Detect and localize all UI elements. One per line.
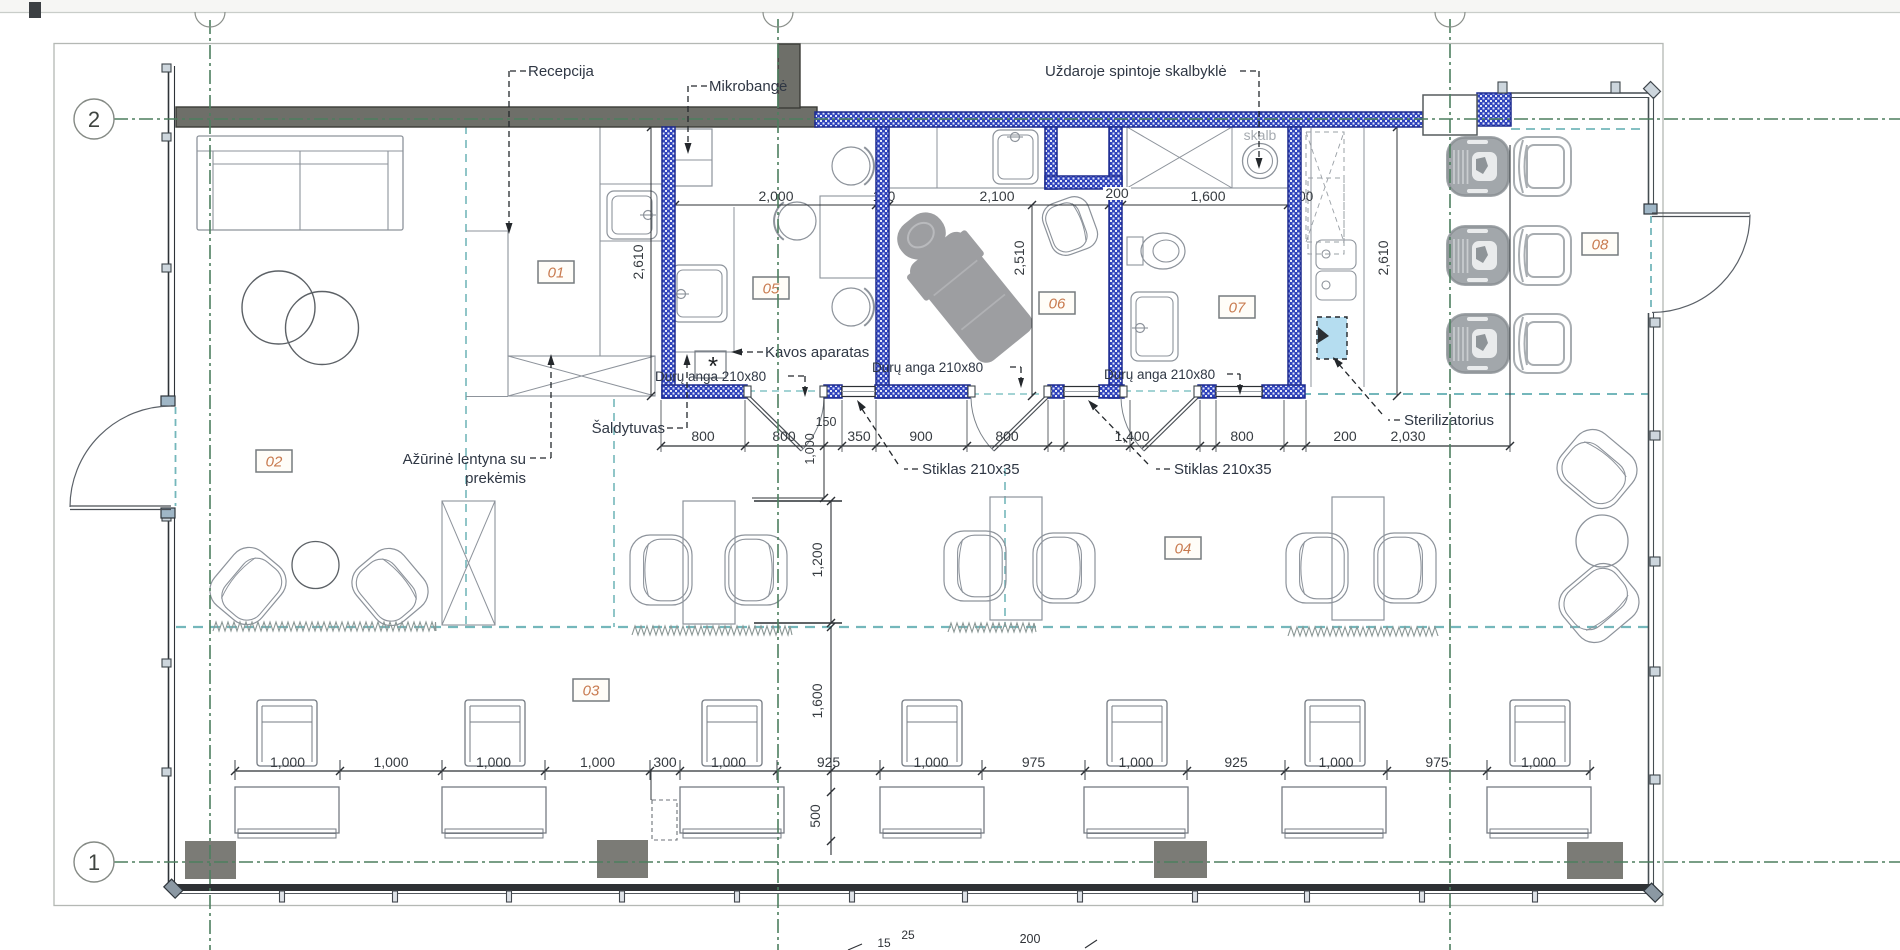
svg-text:200: 200 xyxy=(1020,932,1041,946)
svg-text:975: 975 xyxy=(1022,754,1046,770)
svg-text:04: 04 xyxy=(1175,541,1192,558)
svg-text:925: 925 xyxy=(1224,754,1248,770)
svg-text:2: 2 xyxy=(88,107,100,132)
svg-text:2,510: 2,510 xyxy=(1011,240,1027,275)
svg-text:900: 900 xyxy=(909,428,933,444)
svg-text:1,000: 1,000 xyxy=(711,754,746,770)
svg-text:1,200: 1,200 xyxy=(809,542,825,577)
svg-text:925: 925 xyxy=(817,754,841,770)
svg-text:2,030: 2,030 xyxy=(1390,428,1425,444)
svg-text:Durų anga 210x80: Durų anga 210x80 xyxy=(655,369,766,384)
svg-text:Mikrobangė: Mikrobangė xyxy=(709,78,787,95)
svg-text:500: 500 xyxy=(807,804,823,828)
svg-text:150: 150 xyxy=(816,415,837,429)
svg-text:1,400: 1,400 xyxy=(1114,428,1149,444)
svg-text:Šaldytuvas: Šaldytuvas xyxy=(592,420,665,437)
svg-text:08: 08 xyxy=(1592,237,1609,254)
svg-text:Ažūrinė lentyna su: Ažūrinė lentyna su xyxy=(403,451,526,468)
svg-text:15: 15 xyxy=(877,936,891,950)
svg-text:2,100: 2,100 xyxy=(979,188,1014,204)
svg-text:200: 200 xyxy=(1105,185,1129,201)
svg-text:prekėmis: prekėmis xyxy=(465,470,526,487)
svg-text:1,000: 1,000 xyxy=(803,433,817,464)
svg-text:02: 02 xyxy=(266,454,283,471)
svg-text:800: 800 xyxy=(772,428,796,444)
svg-text:200: 200 xyxy=(1333,428,1357,444)
svg-text:Stiklas 210x35: Stiklas 210x35 xyxy=(922,461,1020,478)
svg-text:Kavos aparatas: Kavos aparatas xyxy=(765,344,869,361)
svg-text:25: 25 xyxy=(901,928,915,942)
svg-text:1,000: 1,000 xyxy=(373,754,408,770)
svg-text:300: 300 xyxy=(653,754,677,770)
svg-text:1,000: 1,000 xyxy=(580,754,615,770)
svg-text:2,610: 2,610 xyxy=(630,244,646,279)
svg-text:Stiklas 210x35: Stiklas 210x35 xyxy=(1174,461,1272,478)
svg-text:2,610: 2,610 xyxy=(1375,240,1391,275)
svg-text:1,000: 1,000 xyxy=(913,754,948,770)
svg-text:Uždaroje spintoje skalbyklė: Uždaroje spintoje skalbyklė xyxy=(1045,63,1227,80)
svg-text:1,000: 1,000 xyxy=(1521,754,1556,770)
svg-text:800: 800 xyxy=(995,428,1019,444)
svg-text:1,600: 1,600 xyxy=(1190,188,1225,204)
svg-text:Durų anga 210x80: Durų anga 210x80 xyxy=(1104,367,1215,382)
svg-text:350: 350 xyxy=(847,428,871,444)
svg-text:1,000: 1,000 xyxy=(1318,754,1353,770)
svg-text:975: 975 xyxy=(1425,754,1449,770)
svg-text:Recepcija: Recepcija xyxy=(528,63,595,80)
svg-text:2,000: 2,000 xyxy=(758,188,793,204)
svg-text:800: 800 xyxy=(691,428,715,444)
svg-text:1,600: 1,600 xyxy=(809,683,825,718)
svg-text:Durų anga 210x80: Durų anga 210x80 xyxy=(872,360,983,375)
svg-text:skalb: skalb xyxy=(1244,127,1277,143)
svg-text:1: 1 xyxy=(88,850,100,875)
svg-text:Sterilizatorius: Sterilizatorius xyxy=(1404,412,1494,429)
svg-text:07: 07 xyxy=(1229,300,1246,317)
svg-text:03: 03 xyxy=(583,683,600,700)
svg-text:1,000: 1,000 xyxy=(1118,754,1153,770)
svg-text:06: 06 xyxy=(1049,296,1066,313)
svg-text:01: 01 xyxy=(548,265,565,282)
svg-text:1,000: 1,000 xyxy=(270,754,305,770)
svg-text:1,000: 1,000 xyxy=(476,754,511,770)
svg-text:800: 800 xyxy=(1230,428,1254,444)
